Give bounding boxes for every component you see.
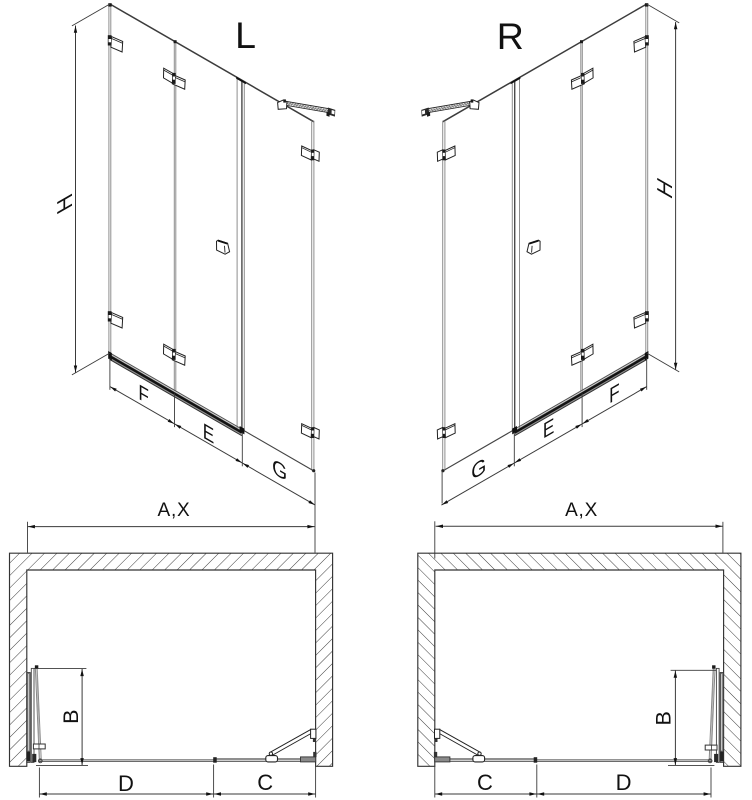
svg-text:R: R	[497, 15, 524, 57]
svg-text:C: C	[257, 770, 273, 795]
svg-text:B: B	[652, 711, 676, 725]
svg-text:A,X: A,X	[565, 500, 598, 521]
svg-text:L: L	[235, 14, 256, 56]
svg-text:A,X: A,X	[157, 500, 190, 521]
svg-text:D: D	[118, 771, 134, 796]
svg-text:C: C	[477, 770, 493, 795]
svg-text:B: B	[59, 710, 83, 724]
svg-text:D: D	[616, 770, 632, 795]
